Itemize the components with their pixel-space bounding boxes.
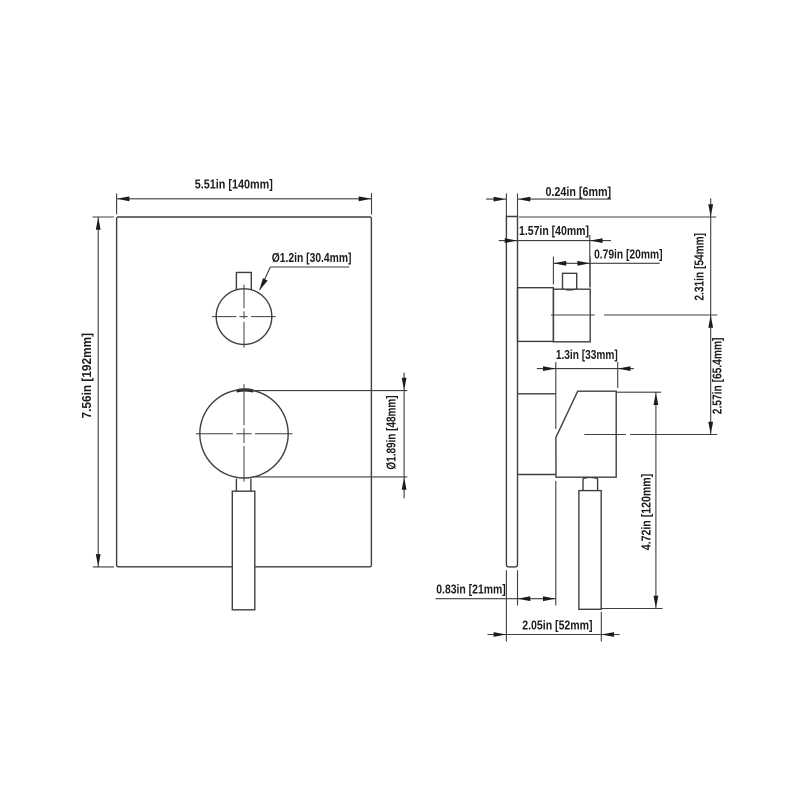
svg-text:Ø1.89in [48mm]: Ø1.89in [48mm]	[383, 395, 398, 469]
svg-text:5.51in [140mm]: 5.51in [140mm]	[195, 176, 273, 191]
svg-text:2.31in [54mm]: 2.31in [54mm]	[692, 233, 707, 301]
svg-text:1.3in [33mm]: 1.3in [33mm]	[556, 347, 618, 362]
svg-text:0.24in [6mm]: 0.24in [6mm]	[545, 184, 611, 199]
svg-text:4.72in [120mm]: 4.72in [120mm]	[639, 474, 654, 551]
svg-text:2.05in [52mm]: 2.05in [52mm]	[522, 618, 592, 633]
svg-text:2.57in [65.4mm]: 2.57in [65.4mm]	[710, 338, 725, 415]
svg-text:1.57in [40mm]: 1.57in [40mm]	[519, 223, 589, 238]
svg-text:7.56in [192mm]: 7.56in [192mm]	[79, 333, 94, 419]
svg-text:0.79in [20mm]: 0.79in [20mm]	[594, 247, 662, 262]
svg-text:0.83in [21mm]: 0.83in [21mm]	[436, 582, 506, 597]
svg-text:Ø1.2in [30.4mm]: Ø1.2in [30.4mm]	[272, 250, 352, 265]
